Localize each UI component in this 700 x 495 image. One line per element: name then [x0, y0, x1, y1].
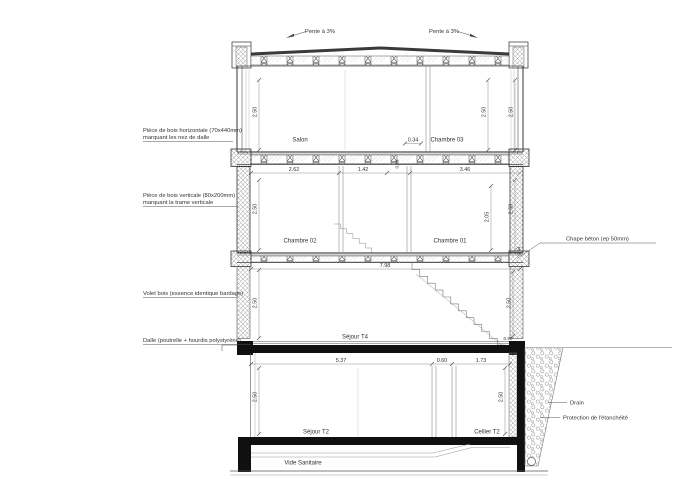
annotation-dalle: Dalle (poutrelle + hourdis polystyrène): [143, 338, 241, 344]
slab-floor2: [231, 149, 529, 167]
stair-main-steps: [412, 263, 505, 346]
dim-f1-w3: 0.68: [395, 159, 400, 168]
dim-f2-h-right: 2.50: [509, 107, 515, 118]
roof-slab: [251, 47, 509, 56]
dim-b-w3: 1.73: [476, 358, 487, 364]
slope-arrow-left: [286, 34, 294, 38]
nez-de-dalle-right: [509, 149, 529, 167]
basement-floor-slab: [238, 437, 517, 445]
floor2-walls: [237, 66, 523, 152]
dim-b-h-right: 2.50: [499, 392, 505, 403]
architectural-section-sheet: Pente à 3% Pente à 3% Pièce de bois hori…: [0, 0, 700, 495]
dim-f1-w2: 1.42: [358, 167, 369, 173]
dim-g-h-right: 2.50: [507, 298, 513, 309]
dim-f1-h-left: 2.50: [253, 204, 259, 215]
dim-f2-h-left: 2.50: [253, 107, 259, 118]
stair-stringer: [416, 274, 503, 346]
stair-upper-steps: [334, 224, 372, 253]
annotation-drain: Drain: [570, 401, 584, 407]
roof-slope-label-right: Pente à 3%: [429, 29, 459, 35]
annotation-volet: Volet bois (essence identique bardage): [143, 291, 243, 297]
annotation-trame-line2: marquant la trame verticale: [143, 200, 213, 206]
drain-gravel-hatch: [525, 348, 563, 467]
dim-f2-small: 0.34: [408, 138, 419, 144]
roof: [232, 32, 528, 69]
annotation-chape: Chape béton (ep 50mm): [566, 237, 629, 243]
dim-f1-w4: 3.46: [460, 167, 471, 173]
room-label-sejour-t2: Séjour T2: [303, 430, 330, 436]
section-drawing: Pente à 3% Pente à 3% Pièce de bois hori…: [0, 0, 700, 495]
room-label-chambre01: Chambre 01: [433, 239, 467, 245]
dim-b-w1: 5.37: [336, 358, 347, 364]
annotation-leaders: [143, 142, 656, 418]
room-label-sejour-t4: Séjour T4: [342, 335, 369, 341]
text-labels: Pente à 3% Pente à 3% Pièce de bois hori…: [143, 29, 629, 467]
nez-de-dalle-left: [231, 149, 251, 167]
ground-slab: [237, 341, 525, 355]
dim-f1-end: 0.44: [517, 246, 522, 255]
roof-slope-label-left: Pente à 3%: [305, 29, 335, 35]
ground-level: [237, 263, 523, 347]
vide-sanitaire-outline: [251, 444, 510, 457]
basement: [238, 352, 525, 472]
dim-guard: 0.90: [504, 336, 513, 341]
room-label-cellier-t2: Cellier T2: [474, 430, 500, 436]
dim-b-h-left: 2.50: [253, 392, 259, 403]
floor1-walls: [237, 166, 523, 253]
dim-f1-w1: 2.62: [289, 167, 300, 173]
room-label-salon: Salon: [292, 138, 307, 144]
grade-lines: [222, 345, 672, 475]
annotation-nez-de-dalle-line2: marquant les nez de dalle: [143, 135, 209, 141]
dim-f1-h-mid: 2.05: [485, 212, 491, 223]
dim-b-w2: 0.60: [437, 358, 448, 364]
basement-retaining-wall: [517, 352, 525, 472]
room-label-chambre03: Chambre 03: [430, 138, 464, 144]
nez-de-dalle-left2: [231, 251, 251, 267]
room-label-vide-sanitaire: Vide Sanitaire: [284, 461, 322, 467]
dim-f1-h-right: 2.50: [509, 204, 515, 215]
roof-joist-band: [251, 56, 509, 65]
annotation-trame-line1: Pièce de bois verticale (80x200mm): [143, 193, 235, 199]
annotation-protection: Protection de l'étanchéité: [563, 416, 628, 422]
drain-pipe: [528, 458, 536, 466]
annotation-nez-de-dalle-line1: Pièce de bois horizontale (70x440mm): [143, 128, 242, 134]
dim-g-h-left: 2.50: [253, 298, 259, 309]
dim-f1-total: 7.98: [380, 263, 391, 269]
slope-arrow-right: [470, 34, 478, 38]
dim-f2-h-mid: 2.50: [482, 107, 488, 118]
drain-assembly: [525, 348, 563, 467]
room-label-chambre02: Chambre 02: [283, 239, 317, 245]
volet-left: [237, 267, 250, 339]
